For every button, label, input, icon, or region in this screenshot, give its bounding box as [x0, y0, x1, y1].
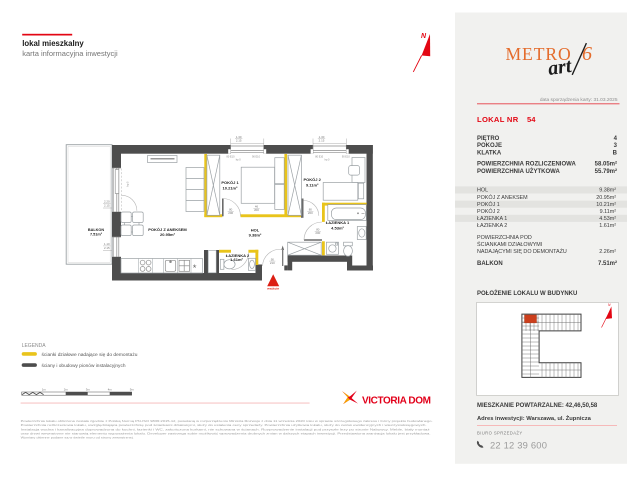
- svg-text:ŁAZIENKA 2: ŁAZIENKA 2: [477, 223, 507, 229]
- svg-text:7.51m²: 7.51m²: [598, 260, 617, 267]
- svg-text:BALKON: BALKON: [477, 261, 503, 267]
- svg-text:90 E10: 90 E10: [252, 156, 261, 159]
- svg-text:LEGENDA: LEGENDA: [22, 343, 47, 349]
- svg-text:POKÓJ Z ANEKSEM: POKÓJ Z ANEKSEM: [477, 194, 528, 201]
- svg-text:Adres inwestycji: Warszawa, ul: Adres inwestycji: Warszawa, ul. Żupnicza: [477, 415, 592, 422]
- svg-text:hp 0: hp 0: [127, 181, 130, 186]
- svg-text:KLATKA: KLATKA: [477, 150, 502, 156]
- svg-text:6: 6: [582, 43, 592, 65]
- svg-text:90 E10: 90 E10: [342, 156, 351, 159]
- svg-text:ścianki działowe nadające się: ścianki działowe nadające się do demonta…: [42, 352, 139, 357]
- svg-text:2.26m²: 2.26m²: [599, 249, 616, 255]
- svg-text:MIESZKANIE POWTARZALNE: 42,46,: MIESZKANIE POWTARZALNE: 42,46,50,58: [477, 403, 598, 409]
- svg-text:HOL: HOL: [477, 188, 488, 194]
- svg-text:karta informacyjna inwestycji: karta informacyjna inwestycji: [22, 49, 118, 58]
- svg-text:1.61m²: 1.61m²: [599, 223, 616, 229]
- svg-text:B: B: [613, 150, 618, 156]
- svg-text:Wymiary okienne podane są w św: Wymiary okienne podane są w świetle muru…: [21, 436, 134, 440]
- svg-text:2.15: 2.15: [319, 139, 325, 143]
- svg-text:ściany i obudowy pionów instal: ściany i obudowy pionów instalacyjnych: [42, 363, 127, 368]
- svg-text:10.21m²: 10.21m²: [223, 185, 239, 190]
- svg-text:22 12 39 600: 22 12 39 600: [490, 440, 547, 451]
- svg-text:4.53m²: 4.53m²: [331, 225, 344, 230]
- svg-text:POWIERZCHNIA UŻYTKOWA: POWIERZCHNIA UŻYTKOWA: [477, 168, 560, 175]
- svg-text:POWIERZCHNIA POD: POWIERZCHNIA POD: [477, 235, 532, 241]
- svg-text:POŁOŻENIE LOKALU W BUDYNKU: POŁOŻENIE LOKALU W BUDYNKU: [477, 290, 577, 297]
- svg-text:55.79m²: 55.79m²: [595, 168, 617, 175]
- svg-text:BALKON: BALKON: [88, 228, 104, 232]
- svg-text:200: 200: [254, 208, 259, 212]
- svg-text:200: 200: [315, 231, 320, 235]
- svg-text:lokal mieszkalny: lokal mieszkalny: [22, 39, 84, 48]
- svg-text:*: *: [193, 263, 197, 274]
- svg-text:20.95m²: 20.95m²: [160, 232, 176, 237]
- svg-text:2m: 2m: [64, 388, 69, 392]
- svg-text:2.15: 2.15: [104, 246, 110, 250]
- svg-text:2.15: 2.15: [236, 139, 242, 143]
- svg-text:wejście: wejście: [266, 287, 280, 291]
- svg-text:hp 0: hp 0: [236, 159, 241, 162]
- svg-text:POKÓJ 2: POKÓJ 2: [304, 177, 322, 182]
- svg-text:4m: 4m: [108, 388, 113, 392]
- svg-text:200: 200: [308, 211, 313, 215]
- svg-text:VICTORIA DOM: VICTORIA DOM: [362, 395, 431, 406]
- svg-text:20.95m²: 20.95m²: [596, 195, 616, 201]
- svg-text:210: 210: [270, 261, 275, 265]
- svg-text:PIĘTRO: PIĘTRO: [477, 136, 500, 142]
- svg-text:ŚCIANKAMI DZIAŁOWYMI: ŚCIANKAMI DZIAŁOWYMI: [477, 240, 542, 248]
- svg-text:58.05m²: 58.05m²: [595, 161, 617, 168]
- svg-text:1.61m²: 1.61m²: [230, 257, 243, 262]
- svg-text:200: 200: [228, 211, 233, 215]
- svg-text:POKÓJ 1: POKÓJ 1: [477, 201, 500, 208]
- svg-text:hp 0: hp 0: [325, 159, 330, 162]
- svg-text:POKÓJ 2: POKÓJ 2: [477, 208, 500, 215]
- svg-text:LOKAL NR: LOKAL NR: [477, 115, 519, 124]
- svg-text:9.38m²: 9.38m²: [599, 188, 616, 194]
- svg-text:80 E10: 80 E10: [315, 156, 324, 159]
- svg-text:9.11m²: 9.11m²: [600, 209, 617, 215]
- svg-text:54: 54: [527, 115, 536, 124]
- svg-text:9.11m²: 9.11m²: [306, 182, 319, 187]
- svg-text:3m: 3m: [86, 388, 91, 392]
- svg-text:80 E10: 80 E10: [227, 156, 236, 159]
- svg-text:POWIERZCHNIA ROZLICZENIOWA: POWIERZCHNIA ROZLICZENIOWA: [477, 162, 576, 168]
- svg-text:NADAJĄCYMI SIĘ DO DEMONTAŻU: NADAJĄCYMI SIĘ DO DEMONTAŻU: [477, 248, 567, 255]
- svg-text:4.53m²: 4.53m²: [599, 216, 616, 222]
- svg-text:POKOJE: POKOJE: [477, 143, 502, 149]
- svg-text:1m: 1m: [42, 388, 47, 392]
- svg-text:ŁAZIENKA 1: ŁAZIENKA 1: [326, 220, 350, 225]
- svg-text:5m: 5m: [130, 388, 135, 392]
- svg-text:2.15: 2.15: [104, 204, 110, 208]
- svg-text:BIURO SPRZEDAŻY: BIURO SPRZEDAŻY: [477, 431, 523, 436]
- svg-text:ŁAZIENKA 1: ŁAZIENKA 1: [477, 216, 507, 222]
- svg-text:9.38m²: 9.38m²: [249, 232, 262, 237]
- svg-text:7.51m²: 7.51m²: [90, 232, 103, 236]
- svg-text:data sporządzenia karty: 31.03: data sporządzenia karty: 31.03.2025: [540, 97, 618, 103]
- svg-text:10.21m²: 10.21m²: [596, 202, 616, 208]
- svg-text:art: art: [547, 55, 575, 80]
